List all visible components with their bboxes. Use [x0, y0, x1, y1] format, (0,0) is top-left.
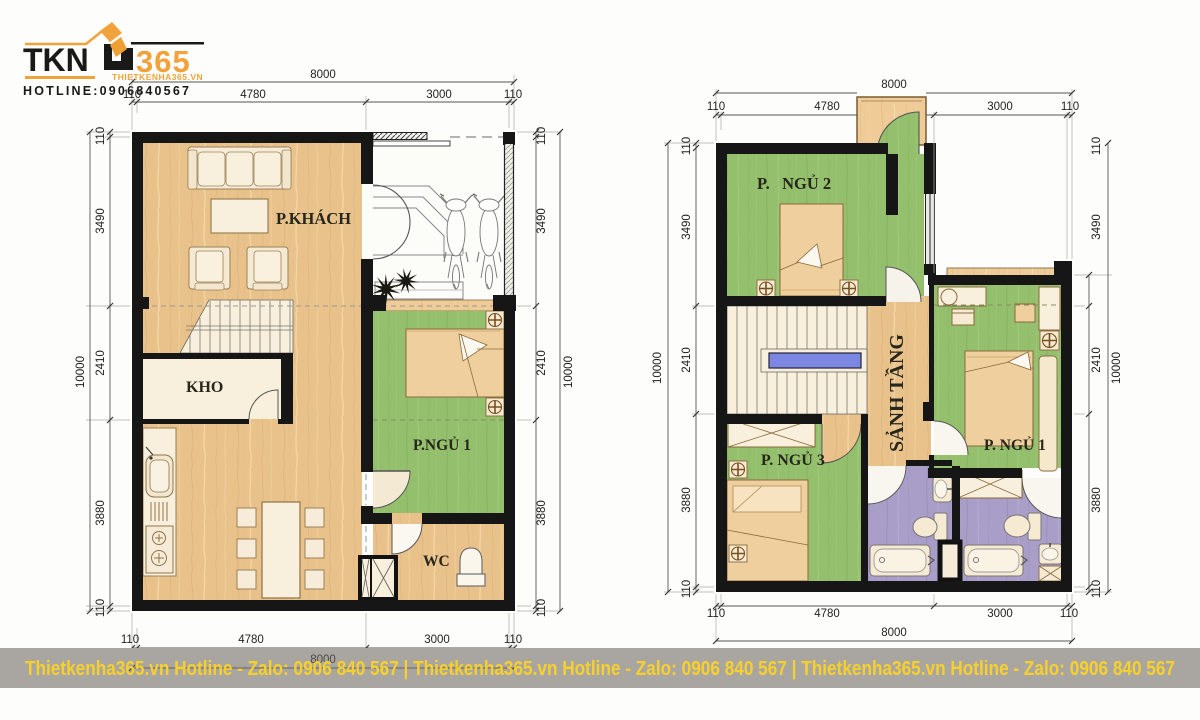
svg-text:8000: 8000	[881, 627, 907, 639]
svg-text:110: 110	[504, 89, 522, 101]
svg-text:110: 110	[681, 580, 693, 598]
svg-text:P. NGỦ 2: P. NGỦ 2	[757, 174, 831, 193]
svg-text:P.KHÁCH: P.KHÁCH	[276, 209, 351, 228]
svg-text:110: 110	[1091, 580, 1103, 598]
svg-text:2410: 2410	[1091, 347, 1103, 373]
svg-text:8000: 8000	[310, 69, 336, 81]
svg-text:3880: 3880	[95, 500, 107, 526]
svg-text:3490: 3490	[95, 208, 107, 234]
svg-text:4780: 4780	[238, 634, 264, 646]
svg-text:TKN: TKN	[23, 42, 89, 78]
svg-text:10000: 10000	[75, 356, 87, 388]
svg-text:Thietkenha365.vn Hotline - Zal: Thietkenha365.vn Hotline - Zalo: 0906 84…	[25, 658, 1175, 680]
svg-text:SẢNH TẦNG: SẢNH TẦNG	[884, 334, 908, 452]
svg-text:110: 110	[536, 599, 548, 617]
svg-text:3490: 3490	[681, 214, 693, 240]
svg-text:10000: 10000	[1111, 352, 1123, 384]
svg-text:110: 110	[95, 599, 107, 617]
svg-text:110: 110	[123, 89, 141, 101]
svg-text:110: 110	[504, 634, 522, 646]
svg-text:10000: 10000	[652, 352, 664, 384]
svg-text:110: 110	[707, 608, 725, 620]
svg-text:WC: WC	[423, 553, 450, 570]
svg-text:110: 110	[536, 127, 548, 145]
svg-text:2410: 2410	[95, 350, 107, 376]
svg-text:3000: 3000	[987, 101, 1013, 113]
svg-text:3000: 3000	[426, 89, 452, 101]
svg-text:110: 110	[95, 127, 107, 145]
svg-text:P. NGỦ 1: P. NGỦ 1	[984, 437, 1046, 454]
svg-text:3000: 3000	[987, 608, 1013, 620]
svg-text:110: 110	[681, 137, 693, 155]
svg-text:P.NGỦ 1: P.NGỦ 1	[413, 437, 471, 454]
svg-text:4780: 4780	[814, 101, 840, 113]
svg-text:3490: 3490	[536, 208, 548, 234]
svg-text:2410: 2410	[681, 347, 693, 373]
svg-text:THIETKENHA365.VN: THIETKENHA365.VN	[112, 72, 203, 82]
svg-text:110: 110	[707, 101, 725, 113]
svg-text:110: 110	[1091, 137, 1103, 155]
svg-text:4780: 4780	[240, 89, 266, 101]
svg-text:2410: 2410	[536, 350, 548, 376]
svg-text:110: 110	[121, 634, 139, 646]
svg-text:10000: 10000	[563, 356, 575, 388]
svg-text:KHO: KHO	[186, 379, 223, 396]
svg-text:3880: 3880	[536, 500, 548, 526]
svg-text:110: 110	[1061, 101, 1079, 113]
svg-text:3490: 3490	[1091, 214, 1103, 240]
svg-text:HOTLINE:0906840567: HOTLINE:0906840567	[23, 84, 191, 98]
svg-text:3880: 3880	[1091, 487, 1103, 513]
svg-text:P. NGỦ 3: P. NGỦ 3	[761, 450, 825, 469]
svg-text:4780: 4780	[814, 608, 840, 620]
svg-text:3880: 3880	[681, 487, 693, 513]
svg-text:8000: 8000	[881, 79, 907, 91]
svg-text:3000: 3000	[424, 634, 450, 646]
svg-text:110: 110	[1060, 608, 1078, 620]
